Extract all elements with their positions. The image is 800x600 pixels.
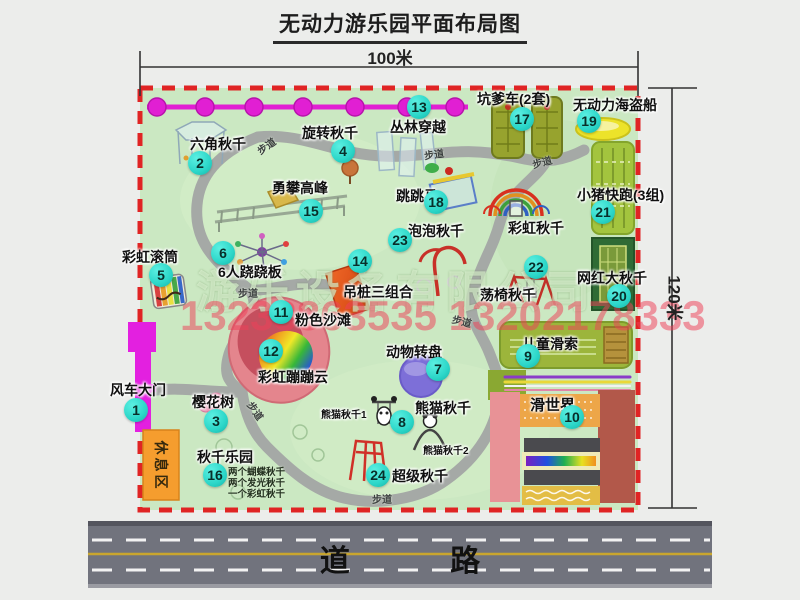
- badge-4: 4: [331, 139, 355, 163]
- walkway-label: 步道: [238, 285, 258, 300]
- label-jungle-crossing: 丛林穿越: [390, 117, 446, 137]
- badge-20: 20: [607, 284, 631, 308]
- badge-1: 1: [124, 398, 148, 422]
- badge-11: 11: [269, 300, 293, 324]
- badge-16: 16: [203, 463, 227, 487]
- label-panda-swing: 熊猫秋千: [415, 398, 471, 418]
- road-label: 道 路: [0, 536, 800, 580]
- label-panda-swing-2: 熊猫秋千2: [423, 442, 469, 457]
- label-peak-climbing: 勇攀高峰: [272, 178, 328, 198]
- label-swing-park: 秋千乐园: [197, 447, 253, 467]
- label-swing-chair: 荡椅秋千: [480, 285, 536, 305]
- label-rainbow-roller: 彩虹滚筒: [122, 247, 178, 267]
- label-rainbow-bounce-cloud: 彩虹蹦蹦云: [258, 367, 328, 387]
- label-windmill-gate: 风车大门: [110, 380, 166, 400]
- width-dimension-label: 100米: [310, 44, 470, 69]
- badge-9: 9: [516, 344, 540, 368]
- badge-17: 17: [510, 107, 534, 131]
- badge-24: 24: [366, 463, 390, 487]
- label-rainbow-swing: 彩虹秋千: [508, 218, 564, 238]
- swing-park-note-3: 一个彩虹秋千: [228, 490, 285, 501]
- label-seesaw-6p: 6人跷跷板: [218, 262, 282, 282]
- height-dimension-label: 120米: [664, 275, 689, 320]
- badge-14: 14: [348, 249, 372, 273]
- swing-park-note-2: 两个发光秋千: [228, 479, 285, 490]
- label-pit-car: 坑爹车(2套): [477, 89, 550, 109]
- badge-23: 23: [388, 228, 412, 252]
- label-bubble-swing: 泡泡秋千: [408, 221, 464, 241]
- badge-7: 7: [426, 357, 450, 381]
- badge-15: 15: [299, 199, 323, 223]
- swing-park-note-1: 两个蝴蝶秋千: [228, 468, 285, 479]
- badge-5: 5: [149, 263, 173, 287]
- badge-13: 13: [407, 95, 431, 119]
- badge-21: 21: [591, 200, 615, 224]
- badge-6: 6: [211, 241, 235, 265]
- badge-10: 10: [560, 405, 584, 429]
- badge-22: 22: [524, 255, 548, 279]
- badge-19: 19: [577, 109, 601, 133]
- walkway-label: 步道: [372, 491, 392, 506]
- label-piggy-run: 小猪快跑(3组): [577, 185, 664, 205]
- label-pink-beach: 粉色沙滩: [295, 310, 351, 330]
- badge-3: 3: [204, 409, 228, 433]
- label-panda-swing-1: 熊猫秋千1: [321, 406, 367, 421]
- badge-12: 12: [259, 339, 283, 363]
- badge-2: 2: [188, 151, 212, 175]
- badge-18: 18: [424, 190, 448, 214]
- badge-8: 8: [390, 410, 414, 434]
- page-title: 无动力游乐园平面布局图: [0, 8, 800, 44]
- label-super-swing: 超级秋千: [392, 466, 448, 486]
- playground-layout-map: 游乐设备有限公司 13233863535 13202178333 无动力游乐园平…: [0, 0, 800, 600]
- label-hanging-piles: 吊桩三组合: [343, 282, 413, 302]
- walkway-label: 步道: [423, 145, 445, 163]
- label-rest-area: 休息区: [151, 441, 171, 492]
